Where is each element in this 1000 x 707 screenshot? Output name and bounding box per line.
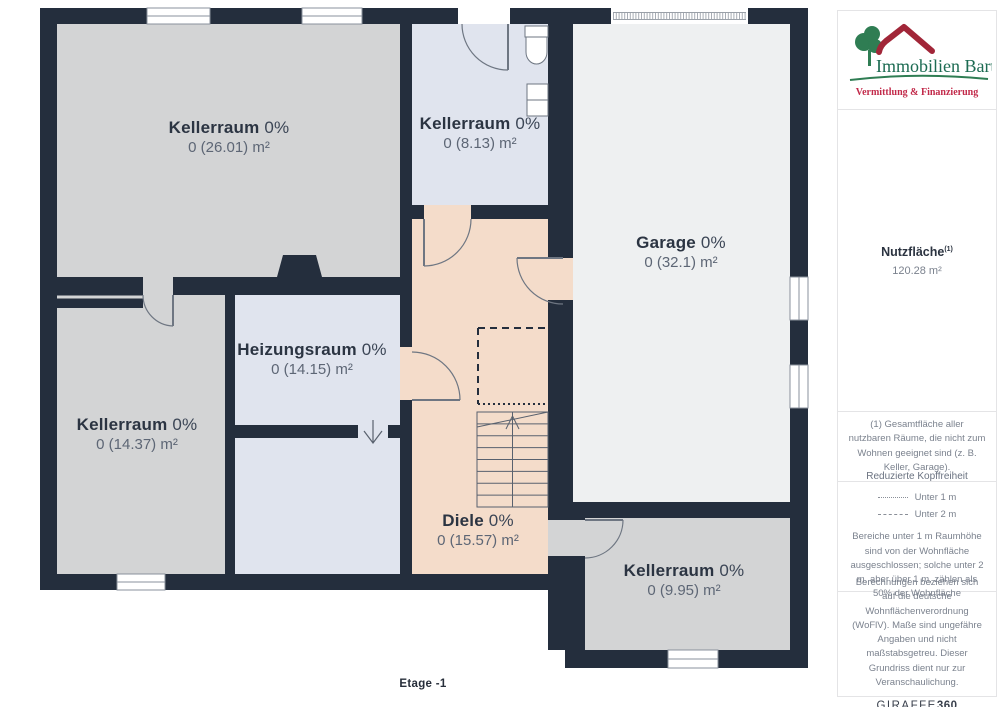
floor-level-label: Etage -1 — [323, 678, 523, 690]
giraffe360-brand: GIRAFFE360 — [876, 700, 957, 707]
sidebar: Immobilien Bart Vermittlung & Finanzieru… — [837, 10, 997, 697]
floorplan-page: Kellerraum 0% 0 (26.01) m² Kellerraum 0%… — [0, 0, 1000, 707]
logo-underline — [850, 76, 988, 80]
legend-title: Reduzierte Kopffreiheit — [866, 471, 968, 482]
nutzflaeche-label: Nutzfläche(1) — [881, 245, 953, 259]
roof-icon — [879, 27, 932, 52]
legend-label: Unter 1 m — [915, 492, 957, 503]
disclaimer-box: Berechnungen beziehen sich auf die deuts… — [837, 592, 997, 697]
double-wall-gap — [57, 296, 143, 299]
legend-item-under-2m: Unter 2 m — [878, 509, 957, 520]
footnote-text: (1) Gesamtfläche aller nutzbaren Räume, … — [848, 418, 986, 475]
logo-name-text: Immobilien Bart — [876, 56, 992, 76]
garage-door — [611, 8, 748, 24]
immobilien-bart-logo: Immobilien Bart Vermittlung & Finanzieru… — [842, 16, 992, 104]
legend-label: Unter 2 m — [915, 509, 957, 520]
room-fills — [57, 24, 790, 650]
dashed-line-sample — [878, 514, 908, 515]
nutzflaeche-box: Nutzfläche(1) 120.28 m² — [837, 110, 997, 412]
logo-box: Immobilien Bart Vermittlung & Finanzieru… — [837, 10, 997, 110]
nutzflaeche-value: 120.28 m² — [892, 265, 942, 277]
wc-fixture — [525, 26, 548, 64]
legend-item-under-1m: Unter 1 m — [878, 492, 957, 503]
logo-tagline-text: Vermittlung & Finanzierung — [856, 87, 978, 98]
disclaimer-text: Berechnungen beziehen sich auf die deuts… — [848, 576, 986, 690]
wall-niche — [527, 84, 548, 116]
dotted-line-sample — [878, 497, 908, 498]
nutzflaeche-footnote-ref: (1) — [944, 245, 953, 252]
